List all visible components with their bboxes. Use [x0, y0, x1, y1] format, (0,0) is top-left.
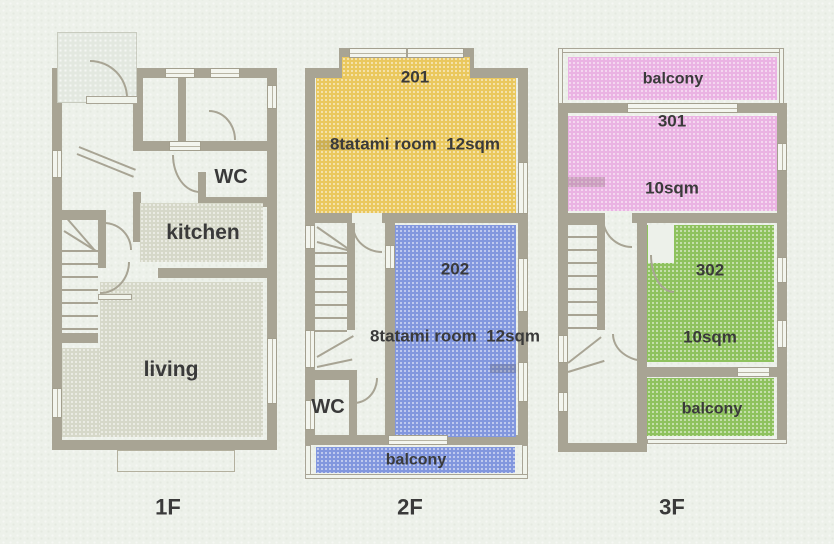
- window: [558, 335, 568, 363]
- window: [777, 143, 787, 171]
- room-302-label: 302 10sqm: [683, 214, 737, 394]
- window: [52, 388, 62, 418]
- window: [305, 225, 315, 249]
- wall: [305, 68, 315, 445]
- balcony-label: balcony: [386, 449, 446, 470]
- room-desc: 10sqm: [645, 177, 699, 199]
- room-label-wc: WC: [311, 394, 344, 420]
- wall: [201, 141, 277, 151]
- door-arc-wc: [172, 155, 200, 193]
- stairs-2f: [315, 252, 347, 334]
- window: [558, 392, 568, 412]
- balcony-label: balcony: [682, 398, 742, 419]
- door-arc-kitchen: [104, 222, 132, 250]
- window: [165, 68, 195, 78]
- stairs-1f: [62, 250, 98, 333]
- room-desc: 10sqm: [683, 326, 737, 348]
- wall: [347, 223, 355, 330]
- stair-winder-line: [317, 335, 354, 358]
- window: [267, 85, 277, 109]
- balcony-door: [388, 435, 448, 445]
- wall: [307, 370, 357, 380]
- floor-plan-canvas: WC kitchen living 1F: [0, 0, 834, 544]
- floor-label-1f: 1F: [155, 492, 181, 521]
- wall: [558, 443, 647, 452]
- room-desc: 8tatami room 12sqm: [330, 133, 500, 155]
- room-desc: 8tatami room 12sqm: [370, 325, 540, 347]
- floor-label-2f: 2F: [397, 492, 423, 521]
- window: [169, 141, 201, 151]
- room-label-kitchen: kitchen: [166, 219, 240, 247]
- window: [267, 338, 277, 404]
- balcony-rail: [558, 48, 784, 53]
- door-arc-room: [209, 110, 236, 140]
- room-number: 201: [330, 66, 500, 88]
- door-arc-stairs-bottom: [612, 334, 646, 362]
- stair-winder-line: [567, 336, 601, 363]
- balcony-rail: [779, 48, 784, 104]
- room-202-label: 202 8tatami room 12sqm: [370, 213, 540, 393]
- room-label-wc: WC: [214, 164, 247, 190]
- room-number: 301: [645, 110, 699, 132]
- stairs-3f: [568, 223, 597, 331]
- balcony-door: [737, 367, 770, 377]
- floor-label-3f: 3F: [659, 492, 685, 521]
- room-label-living: living: [144, 356, 199, 384]
- wall: [565, 213, 600, 223]
- beam-shadow: [568, 177, 605, 187]
- window: [518, 162, 528, 214]
- balcony-rail: [647, 439, 787, 444]
- window: [777, 257, 787, 283]
- door-threshold: [98, 294, 132, 300]
- window: [210, 68, 240, 78]
- room-number: 202: [370, 258, 540, 280]
- entrance-step: [86, 96, 138, 104]
- wall: [52, 440, 277, 450]
- stair-winder-line: [568, 360, 605, 373]
- room-201-label: 201 8tatami room 12sqm: [330, 21, 500, 201]
- wall: [52, 333, 98, 343]
- wall: [133, 141, 169, 151]
- wall: [158, 268, 277, 278]
- balcony-rail: [305, 474, 528, 479]
- room-number: 302: [683, 259, 737, 281]
- balcony-rail: [558, 48, 563, 104]
- wall: [178, 78, 186, 144]
- window: [52, 150, 62, 178]
- room-living-extension: [62, 348, 100, 437]
- stair-winder-line: [317, 359, 353, 368]
- window: [305, 330, 315, 368]
- window: [777, 320, 787, 348]
- door-arc-stairs-top: [602, 218, 632, 248]
- wall: [137, 68, 277, 78]
- porch-step-south: [117, 450, 235, 472]
